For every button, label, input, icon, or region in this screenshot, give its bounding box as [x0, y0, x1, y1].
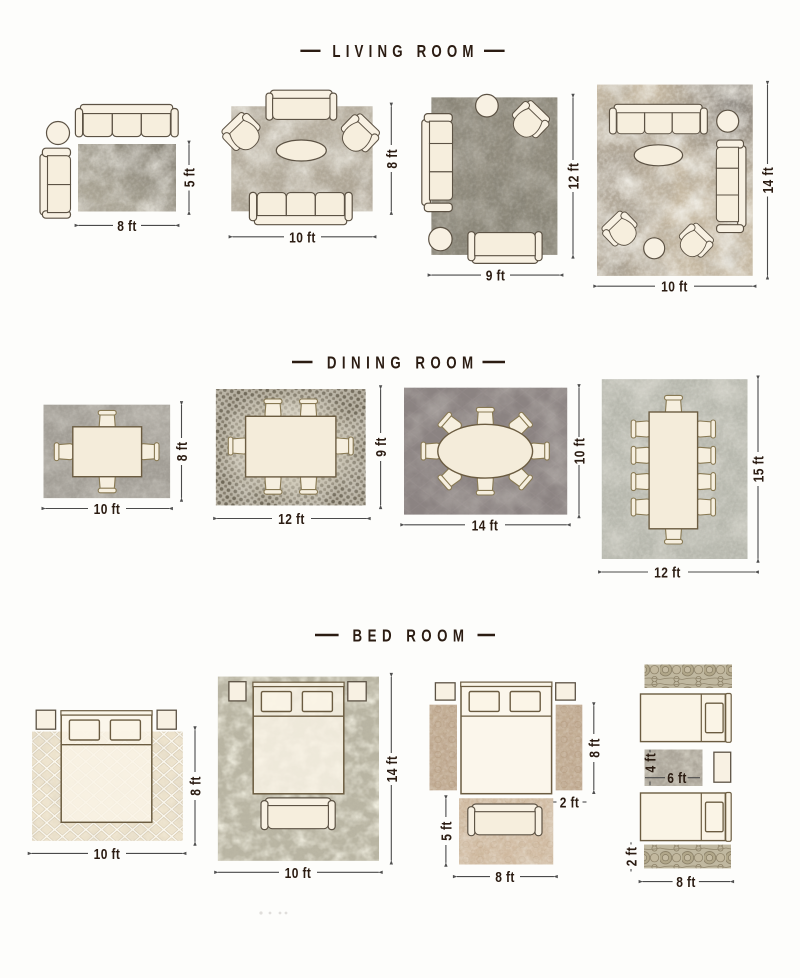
- svg-text:8 ft: 8 ft: [187, 776, 204, 796]
- svg-text:10 ft: 10 ft: [661, 278, 688, 295]
- svg-text:8 ft: 8 ft: [384, 149, 401, 169]
- svg-text:10 ft: 10 ft: [571, 438, 588, 465]
- svg-text:2 ft: 2 ft: [623, 847, 640, 867]
- svg-text:8 ft: 8 ft: [586, 738, 603, 758]
- svg-text:LIVING ROOM: LIVING ROOM: [332, 42, 478, 61]
- svg-text:10 ft: 10 ft: [285, 865, 312, 882]
- svg-text:10 ft: 10 ft: [94, 846, 121, 863]
- svg-text:2 ft: 2 ft: [560, 794, 580, 811]
- svg-text:12 ft: 12 ft: [654, 564, 681, 581]
- svg-text:8 ft: 8 ft: [676, 874, 696, 891]
- svg-text:9 ft: 9 ft: [486, 267, 506, 284]
- svg-text:8 ft: 8 ft: [174, 442, 191, 462]
- svg-text:8 ft: 8 ft: [117, 218, 137, 235]
- svg-text:BED ROOM: BED ROOM: [353, 627, 470, 646]
- svg-text:10 ft: 10 ft: [289, 229, 316, 246]
- svg-text:10 ft: 10 ft: [94, 501, 121, 518]
- svg-text:5 ft: 5 ft: [438, 821, 455, 841]
- svg-text:14 ft: 14 ft: [760, 167, 777, 194]
- svg-text:5 ft: 5 ft: [181, 168, 198, 188]
- svg-text:14 ft: 14 ft: [384, 756, 401, 783]
- svg-text:9 ft: 9 ft: [373, 437, 390, 457]
- svg-text:8 ft: 8 ft: [495, 869, 515, 886]
- svg-text:DINING ROOM: DINING ROOM: [327, 354, 479, 373]
- svg-text:14 ft: 14 ft: [472, 517, 499, 534]
- svg-text:4 ft: 4 ft: [642, 753, 659, 773]
- svg-text:12 ft: 12 ft: [565, 163, 582, 190]
- svg-text:15 ft: 15 ft: [750, 456, 767, 483]
- svg-text:6 ft: 6 ft: [667, 770, 687, 787]
- svg-text:12 ft: 12 ft: [278, 511, 305, 528]
